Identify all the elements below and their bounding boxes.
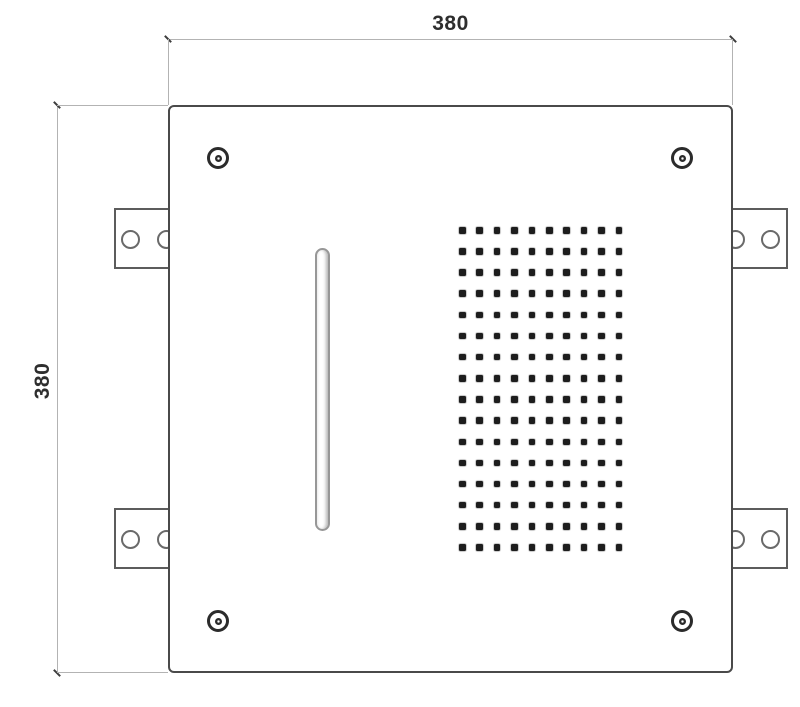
nozzle-dot — [459, 290, 466, 297]
nozzle-dot — [529, 502, 536, 509]
width-dimension-line — [168, 39, 733, 40]
nozzle-dot — [563, 481, 570, 488]
nozzle-dot — [581, 290, 588, 297]
nozzle-dot — [581, 481, 588, 488]
nozzle-dot — [563, 396, 570, 403]
nozzle-dot — [546, 460, 553, 467]
extension-line — [57, 105, 168, 106]
nozzle-dot — [494, 354, 501, 361]
nozzle-dot — [494, 396, 501, 403]
nozzle-dot — [494, 269, 501, 276]
nozzle-dot — [546, 354, 553, 361]
nozzle-dot — [494, 248, 501, 255]
nozzle-dot — [459, 354, 466, 361]
nozzle-dot — [598, 544, 605, 551]
nozzle-dot — [616, 417, 623, 424]
nozzle-dot — [616, 227, 623, 234]
nozzle-dot — [529, 439, 536, 446]
nozzle-dot — [616, 544, 623, 551]
corner-screw-bottom-right — [671, 610, 693, 632]
nozzle-dot — [511, 312, 518, 319]
nozzle-dot — [546, 312, 553, 319]
nozzle-dot — [546, 375, 553, 382]
nozzle-dot — [616, 460, 623, 467]
nozzle-dot — [459, 227, 466, 234]
nozzle-dot — [511, 502, 518, 509]
nozzle-dot — [476, 269, 483, 276]
nozzle-dot — [511, 439, 518, 446]
nozzle-grid — [459, 227, 623, 552]
nozzle-dot — [546, 502, 553, 509]
nozzle-dot — [581, 227, 588, 234]
nozzle-dot — [511, 375, 518, 382]
nozzle-dot — [529, 290, 536, 297]
nozzle-dot — [581, 248, 588, 255]
nozzle-dot — [511, 481, 518, 488]
nozzle-dot — [459, 481, 466, 488]
nozzle-dot — [581, 544, 588, 551]
nozzle-dot — [529, 333, 536, 340]
nozzle-dot — [598, 227, 605, 234]
nozzle-dot — [563, 417, 570, 424]
nozzle-dot — [476, 460, 483, 467]
nozzle-dot — [581, 502, 588, 509]
nozzle-dot — [476, 502, 483, 509]
nozzle-dot — [616, 333, 623, 340]
nozzle-dot — [529, 269, 536, 276]
nozzle-dot — [494, 375, 501, 382]
nozzle-dot — [511, 333, 518, 340]
height-dimension-label: 380 — [31, 363, 55, 400]
nozzle-dot — [598, 502, 605, 509]
nozzle-dot — [494, 333, 501, 340]
nozzle-dot — [581, 523, 588, 530]
nozzle-dot — [581, 439, 588, 446]
nozzle-dot — [459, 460, 466, 467]
nozzle-dot — [563, 502, 570, 509]
extension-line — [57, 672, 168, 673]
technical-drawing-canvas: 380 380 — [0, 0, 800, 707]
bracket-hole — [761, 530, 780, 549]
nozzle-dot — [546, 269, 553, 276]
nozzle-dot — [598, 481, 605, 488]
nozzle-dot — [494, 290, 501, 297]
nozzle-dot — [563, 460, 570, 467]
nozzle-dot — [581, 269, 588, 276]
nozzle-dot — [476, 354, 483, 361]
nozzle-dot — [494, 502, 501, 509]
nozzle-dot — [459, 523, 466, 530]
nozzle-dot — [511, 290, 518, 297]
nozzle-dot — [529, 460, 536, 467]
nozzle-dot — [476, 523, 483, 530]
nozzle-dot — [529, 523, 536, 530]
nozzle-dot — [511, 227, 518, 234]
nozzle-dot — [476, 417, 483, 424]
nozzle-dot — [529, 227, 536, 234]
nozzle-dot — [563, 523, 570, 530]
mounting-bracket-upper-right — [727, 208, 788, 269]
nozzle-dot — [616, 248, 623, 255]
nozzle-dot — [616, 439, 623, 446]
nozzle-dot — [598, 333, 605, 340]
bracket-hole — [761, 230, 780, 249]
waterfall-slot — [315, 248, 330, 531]
nozzle-dot — [563, 439, 570, 446]
nozzle-dot — [563, 354, 570, 361]
corner-screw-top-left — [207, 147, 229, 169]
nozzle-dot — [476, 290, 483, 297]
nozzle-dot — [546, 523, 553, 530]
nozzle-dot — [459, 502, 466, 509]
nozzle-dot — [459, 312, 466, 319]
nozzle-dot — [511, 544, 518, 551]
nozzle-dot — [529, 248, 536, 255]
nozzle-dot — [529, 375, 536, 382]
screw-core — [215, 155, 222, 162]
nozzle-dot — [598, 523, 605, 530]
nozzle-dot — [598, 396, 605, 403]
screw-core — [679, 618, 686, 625]
bracket-hole — [121, 230, 140, 249]
nozzle-dot — [476, 312, 483, 319]
nozzle-dot — [459, 439, 466, 446]
nozzle-dot — [476, 439, 483, 446]
nozzle-dot — [598, 312, 605, 319]
nozzle-dot — [563, 248, 570, 255]
nozzle-dot — [616, 481, 623, 488]
nozzle-dot — [598, 248, 605, 255]
panel-body — [168, 105, 733, 673]
nozzle-dot — [563, 312, 570, 319]
nozzle-dot — [494, 417, 501, 424]
nozzle-dot — [511, 248, 518, 255]
corner-screw-bottom-left — [207, 610, 229, 632]
screw-core — [679, 155, 686, 162]
nozzle-dot — [511, 523, 518, 530]
nozzle-dot — [563, 333, 570, 340]
height-dimension-line — [57, 105, 58, 673]
nozzle-dot — [546, 396, 553, 403]
nozzle-dot — [476, 227, 483, 234]
nozzle-dot — [581, 396, 588, 403]
nozzle-dot — [598, 354, 605, 361]
nozzle-dot — [459, 333, 466, 340]
nozzle-dot — [616, 312, 623, 319]
nozzle-dot — [546, 248, 553, 255]
nozzle-dot — [476, 333, 483, 340]
nozzle-dot — [581, 333, 588, 340]
nozzle-dot — [459, 248, 466, 255]
nozzle-dot — [581, 460, 588, 467]
nozzle-dot — [459, 396, 466, 403]
nozzle-dot — [598, 417, 605, 424]
nozzle-dot — [598, 439, 605, 446]
nozzle-dot — [511, 417, 518, 424]
nozzle-dot — [494, 481, 501, 488]
bracket-hole — [121, 530, 140, 549]
nozzle-dot — [598, 290, 605, 297]
nozzle-dot — [616, 396, 623, 403]
nozzle-dot — [529, 544, 536, 551]
nozzle-dot — [529, 354, 536, 361]
nozzle-dot — [581, 312, 588, 319]
nozzle-dot — [546, 481, 553, 488]
nozzle-dot — [598, 375, 605, 382]
screw-core — [215, 618, 222, 625]
nozzle-dot — [581, 354, 588, 361]
nozzle-dot — [494, 523, 501, 530]
nozzle-dot — [494, 544, 501, 551]
width-dimension-label: 380 — [168, 12, 733, 36]
nozzle-dot — [476, 248, 483, 255]
nozzle-dot — [529, 312, 536, 319]
nozzle-dot — [529, 481, 536, 488]
nozzle-dot — [511, 269, 518, 276]
nozzle-dot — [476, 481, 483, 488]
nozzle-dot — [546, 290, 553, 297]
nozzle-dot — [476, 396, 483, 403]
mounting-bracket-lower-right — [727, 508, 788, 569]
nozzle-dot — [494, 227, 501, 234]
nozzle-dot — [511, 354, 518, 361]
nozzle-dot — [563, 290, 570, 297]
nozzle-dot — [563, 375, 570, 382]
mounting-bracket-lower-left — [114, 508, 176, 569]
nozzle-dot — [459, 417, 466, 424]
nozzle-dot — [494, 439, 501, 446]
nozzle-dot — [494, 460, 501, 467]
nozzle-dot — [476, 375, 483, 382]
nozzle-dot — [598, 269, 605, 276]
nozzle-dot — [616, 523, 623, 530]
nozzle-dot — [616, 290, 623, 297]
nozzle-dot — [546, 544, 553, 551]
nozzle-dot — [459, 544, 466, 551]
nozzle-dot — [511, 396, 518, 403]
nozzle-dot — [616, 375, 623, 382]
nozzle-dot — [476, 544, 483, 551]
nozzle-dot — [581, 375, 588, 382]
extension-line — [732, 39, 733, 105]
nozzle-dot — [563, 269, 570, 276]
nozzle-dot — [546, 439, 553, 446]
nozzle-dot — [616, 354, 623, 361]
nozzle-dot — [581, 417, 588, 424]
nozzle-dot — [563, 227, 570, 234]
nozzle-dot — [563, 544, 570, 551]
nozzle-dot — [546, 417, 553, 424]
nozzle-dot — [529, 417, 536, 424]
nozzle-dot — [546, 227, 553, 234]
nozzle-dot — [598, 460, 605, 467]
nozzle-dot — [511, 460, 518, 467]
mounting-bracket-upper-left — [114, 208, 176, 269]
nozzle-dot — [459, 269, 466, 276]
nozzle-dot — [459, 375, 466, 382]
nozzle-dot — [529, 396, 536, 403]
nozzle-dot — [616, 502, 623, 509]
extension-line — [168, 39, 169, 105]
nozzle-dot — [546, 333, 553, 340]
nozzle-dot — [494, 312, 501, 319]
corner-screw-top-right — [671, 147, 693, 169]
nozzle-dot — [616, 269, 623, 276]
